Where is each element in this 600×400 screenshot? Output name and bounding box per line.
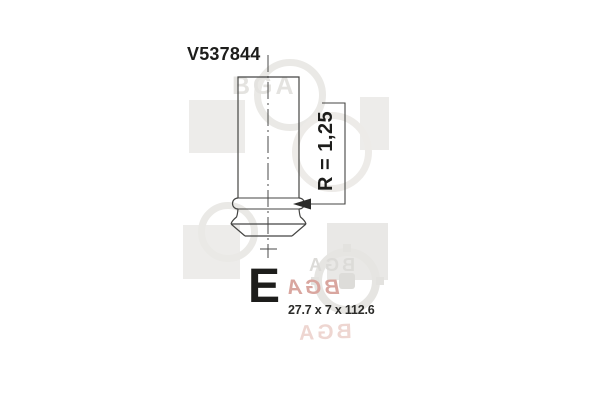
radius-dimension-label: R = 1,25 [315, 111, 338, 191]
valve-seat-chamfer-left [231, 224, 245, 236]
valve-neck-right [299, 209, 306, 224]
valve-neck-left [231, 209, 238, 224]
valve-groove-left-notch [233, 198, 239, 209]
part-number-label: V537844 [187, 44, 260, 65]
valve-type-letter: E [248, 267, 280, 307]
catalog-drawing-page: BGA BGA BGA BGA V537844 R = 1,25 E 27.7 … [0, 0, 600, 400]
overall-dimensions-label: 27.7 x 7 x 112.6 [288, 303, 374, 317]
valve-diagram [0, 0, 600, 400]
valve-seat-chamfer-right [292, 224, 306, 236]
